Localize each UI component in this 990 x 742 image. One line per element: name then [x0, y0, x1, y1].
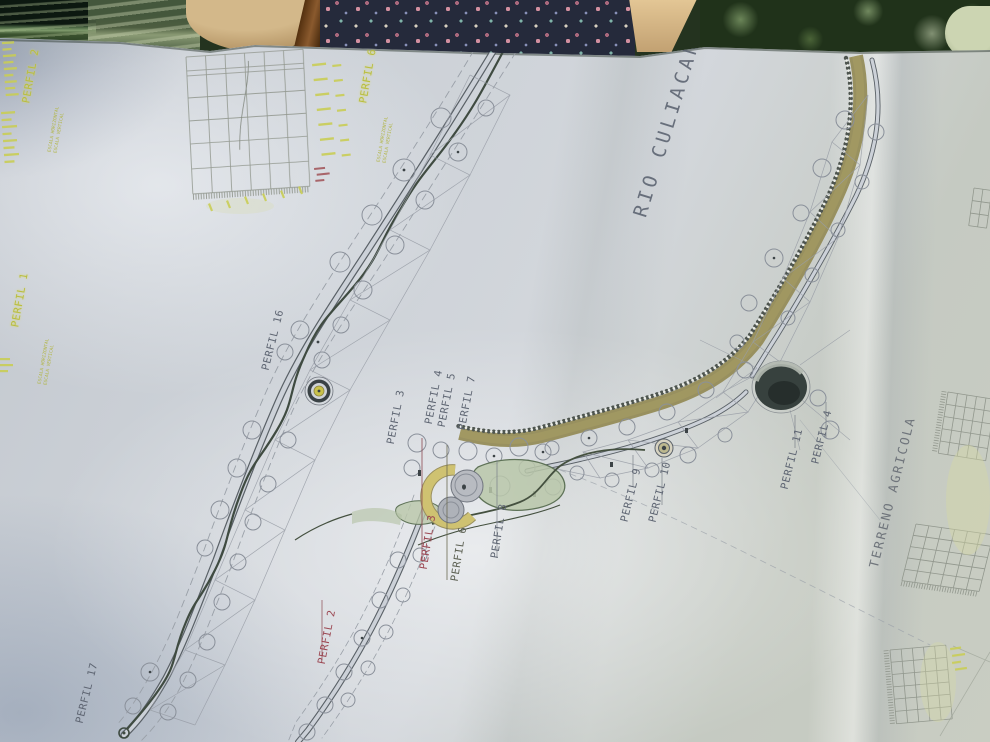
- photo-of-site-plan: PERFIL 2 ESCALA HORIZONTALESCALA VERTICA…: [0, 0, 990, 742]
- dome-structure: [752, 361, 810, 413]
- red-level-marks: [314, 166, 330, 181]
- park-design: [295, 449, 645, 545]
- secondary-path: [288, 495, 442, 742]
- roundabout-fountain: [305, 377, 333, 405]
- fountain-target: [655, 439, 673, 457]
- profile-grids: [186, 49, 990, 736]
- trees: [125, 100, 884, 740]
- section-lines: [322, 402, 826, 660]
- highlighted-station-tables: [0, 41, 967, 671]
- holding-hand: [945, 6, 990, 56]
- plan-sheet: PERFIL 2 ESCALA HORIZONTALESCALA VERTICA…: [0, 0, 990, 742]
- plan-drawing: [0, 0, 990, 742]
